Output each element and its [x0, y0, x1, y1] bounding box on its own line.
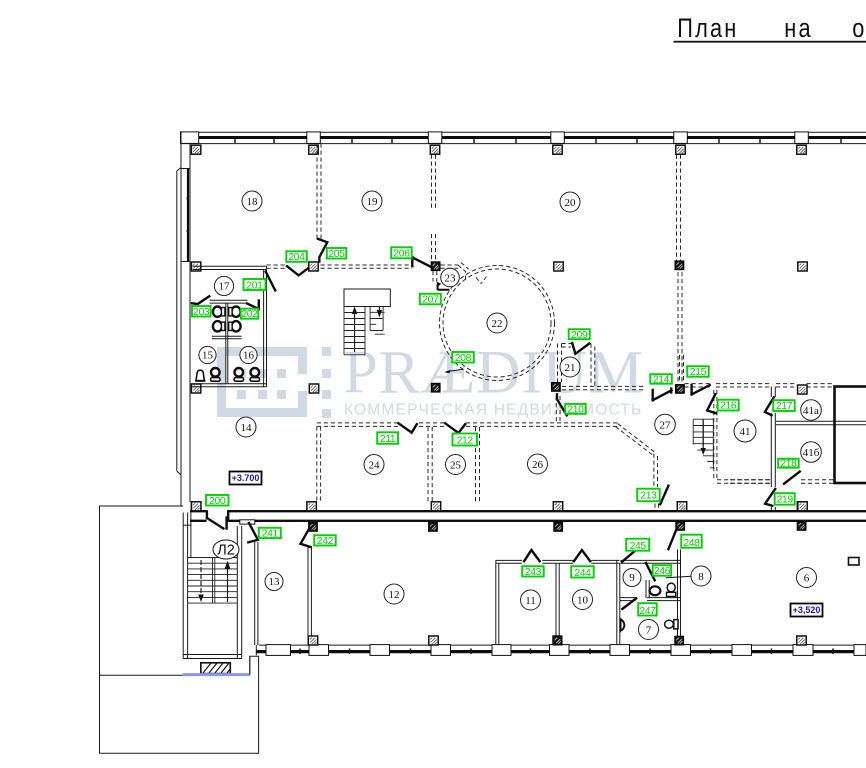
- svg-text:206: 206: [393, 248, 410, 259]
- svg-text:248: 248: [683, 538, 700, 549]
- svg-text:КОММЕРЧЕСКАЯ НЕДВИЖИМОСТЬ: КОММЕРЧЕСКАЯ НЕДВИЖИМОСТЬ: [344, 402, 642, 419]
- svg-text:211: 211: [380, 434, 396, 445]
- svg-text:6: 6: [804, 573, 810, 585]
- svg-text:41б: 41б: [803, 447, 820, 459]
- svg-text:на: на: [784, 14, 812, 44]
- svg-text:11: 11: [525, 595, 536, 607]
- svg-text:219: 219: [777, 495, 794, 506]
- svg-text:PRÆDIUM: PRÆDIUM: [344, 339, 644, 407]
- svg-text:205: 205: [328, 249, 345, 260]
- svg-text:215: 215: [690, 367, 707, 378]
- svg-text:214: 214: [653, 374, 670, 385]
- svg-text:22: 22: [492, 318, 503, 330]
- svg-text:16: 16: [243, 350, 255, 362]
- svg-text:207: 207: [422, 295, 439, 306]
- svg-text:41a: 41a: [803, 405, 819, 417]
- svg-text:204: 204: [288, 252, 305, 263]
- svg-text:19: 19: [367, 196, 379, 208]
- svg-text:208: 208: [455, 353, 472, 364]
- svg-text:241: 241: [262, 528, 279, 539]
- svg-text:242: 242: [317, 536, 334, 547]
- svg-text:25: 25: [450, 460, 462, 472]
- svg-text:244: 244: [574, 568, 591, 579]
- svg-text:Л2: Л2: [217, 543, 235, 559]
- svg-text:243: 243: [525, 567, 542, 578]
- svg-text:9: 9: [629, 572, 635, 584]
- svg-text:203: 203: [193, 307, 210, 318]
- svg-text:17: 17: [219, 281, 231, 293]
- svg-text:216: 216: [720, 400, 737, 411]
- svg-text:14: 14: [241, 422, 253, 434]
- svg-text:21: 21: [565, 362, 576, 374]
- svg-text:20: 20: [565, 197, 577, 209]
- svg-text:+3.700: +3.700: [232, 473, 260, 483]
- svg-text:210: 210: [567, 404, 584, 415]
- svg-text:41: 41: [740, 426, 751, 438]
- svg-text:26: 26: [532, 459, 544, 471]
- svg-text:23: 23: [445, 273, 457, 285]
- svg-text:12: 12: [389, 589, 400, 601]
- svg-text:212: 212: [457, 435, 474, 446]
- svg-text:10: 10: [577, 595, 589, 607]
- svg-text:218: 218: [780, 459, 797, 470]
- svg-text:7: 7: [646, 625, 652, 637]
- svg-text:отм: отм: [852, 14, 866, 44]
- svg-text:15: 15: [202, 350, 214, 362]
- svg-text:8: 8: [698, 571, 704, 583]
- svg-text:246: 246: [654, 566, 671, 577]
- svg-text:18: 18: [247, 196, 259, 208]
- svg-text:План: План: [677, 14, 738, 44]
- svg-text:200: 200: [209, 496, 226, 507]
- svg-text:13: 13: [269, 576, 281, 588]
- svg-text:27: 27: [660, 420, 672, 432]
- svg-text:213: 213: [640, 491, 657, 502]
- svg-text:245: 245: [630, 541, 647, 552]
- svg-text:247: 247: [639, 606, 656, 617]
- svg-text:217: 217: [776, 401, 793, 412]
- svg-text:201: 201: [246, 280, 263, 291]
- svg-text:209: 209: [571, 330, 588, 341]
- svg-text:+3,520: +3,520: [793, 605, 821, 615]
- svg-text:24: 24: [369, 460, 381, 472]
- svg-text:202: 202: [241, 309, 258, 320]
